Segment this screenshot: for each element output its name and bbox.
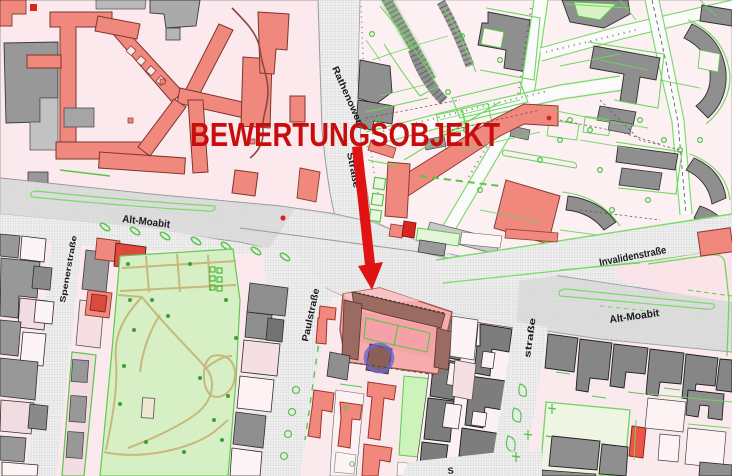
svg-text:S: S bbox=[447, 465, 454, 476]
svg-text:BEWERTUNGSOBJEKT: BEWERTUNGSOBJEKT bbox=[190, 116, 500, 153]
